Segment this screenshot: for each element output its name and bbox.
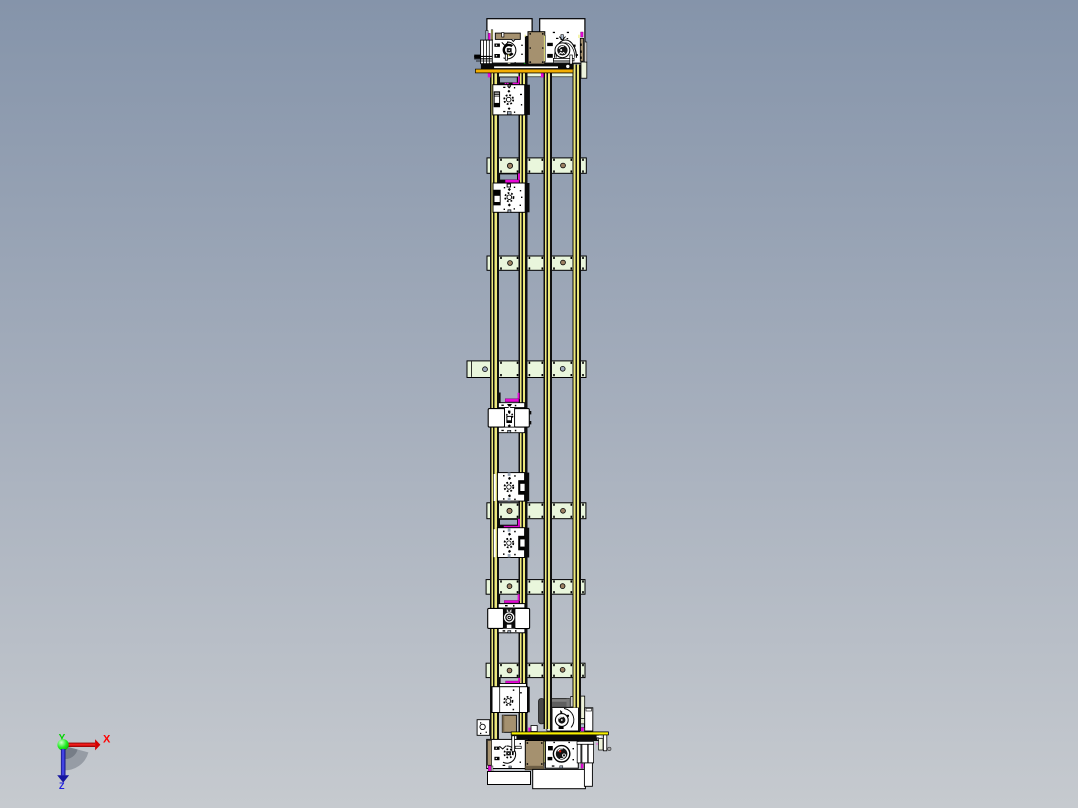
svg-text:Z: Z (59, 781, 65, 791)
svg-text:X: X (103, 734, 111, 746)
